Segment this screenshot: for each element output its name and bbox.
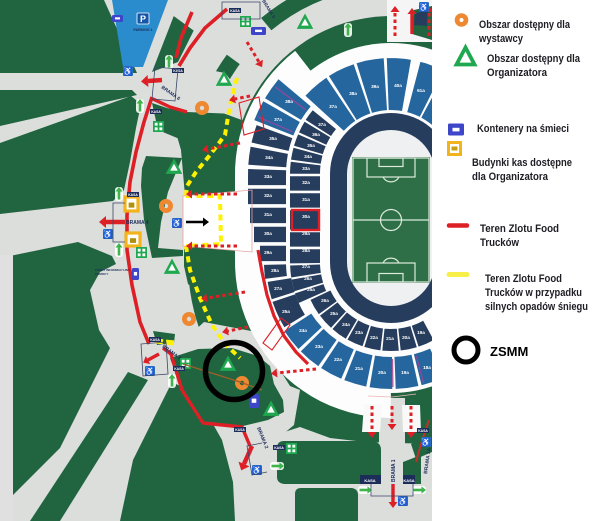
svg-text:KASA: KASA bbox=[274, 446, 284, 450]
svg-text:31a: 31a bbox=[302, 197, 310, 202]
svg-text:22a: 22a bbox=[334, 357, 342, 362]
svg-text:39a: 39a bbox=[371, 84, 379, 89]
svg-text:24a: 24a bbox=[342, 322, 350, 327]
svg-text:18a: 18a bbox=[423, 365, 431, 370]
svg-text:PARKING 1: PARKING 1 bbox=[133, 28, 152, 32]
svg-text:KASA: KASA bbox=[403, 478, 414, 483]
svg-text:♿: ♿ bbox=[398, 496, 408, 506]
svg-text:26a: 26a bbox=[304, 276, 312, 281]
svg-text:35a: 35a bbox=[269, 136, 277, 141]
svg-text:♿: ♿ bbox=[103, 229, 113, 239]
svg-text:28a: 28a bbox=[302, 248, 310, 253]
svg-text:♿: ♿ bbox=[421, 437, 431, 447]
svg-text:Teren Zlotu Food: Teren Zlotu Food bbox=[480, 223, 559, 235]
svg-text:32a: 32a bbox=[264, 193, 272, 198]
svg-text:20a: 20a bbox=[402, 335, 410, 340]
svg-text:19a: 19a bbox=[417, 330, 425, 335]
svg-text:27a: 27a bbox=[274, 286, 282, 291]
svg-text:25a: 25a bbox=[282, 309, 290, 314]
svg-text:22a: 22a bbox=[370, 335, 378, 340]
svg-text:37a: 37a bbox=[329, 104, 337, 109]
svg-text:ZSMM: ZSMM bbox=[490, 344, 528, 359]
svg-text:KASA: KASA bbox=[230, 9, 240, 13]
svg-text:KASA: KASA bbox=[364, 478, 375, 483]
svg-text:24a: 24a bbox=[299, 328, 307, 333]
svg-text:Teren Zlotu Food: Teren Zlotu Food bbox=[485, 273, 562, 285]
svg-text:dla Organizatora: dla Organizatora bbox=[472, 171, 549, 183]
svg-text:21a: 21a bbox=[386, 336, 394, 341]
svg-text:KASA: KASA bbox=[174, 367, 184, 371]
svg-text:Organizatora: Organizatora bbox=[487, 67, 548, 79]
svg-text:34a: 34a bbox=[265, 155, 273, 160]
svg-text:27a: 27a bbox=[302, 264, 310, 269]
svg-text:33a: 33a bbox=[302, 166, 310, 171]
svg-text:KASA: KASA bbox=[418, 429, 428, 433]
svg-text:37a: 37a bbox=[318, 122, 326, 127]
svg-text:61a: 61a bbox=[417, 88, 425, 93]
svg-text:wystawcy: wystawcy bbox=[478, 33, 524, 45]
svg-text:33a: 33a bbox=[264, 174, 272, 179]
svg-text:♿: ♿ bbox=[419, 2, 429, 12]
svg-text:26a: 26a bbox=[321, 298, 329, 303]
svg-text:Kontenery na śmieci: Kontenery na śmieci bbox=[477, 123, 569, 135]
svg-text:30a: 30a bbox=[302, 214, 310, 219]
svg-text:23a: 23a bbox=[355, 330, 363, 335]
svg-text:36a: 36a bbox=[312, 132, 320, 137]
svg-text:♿: ♿ bbox=[172, 218, 182, 228]
svg-text:P: P bbox=[140, 14, 146, 24]
svg-text:38a: 38a bbox=[349, 91, 357, 96]
svg-text:28a: 28a bbox=[271, 268, 279, 273]
svg-text:Trucków w przypadku: Trucków w przypadku bbox=[485, 287, 582, 299]
svg-text:POMOCY: POMOCY bbox=[95, 272, 108, 276]
svg-text:25a: 25a bbox=[330, 311, 338, 316]
svg-text:34a: 34a bbox=[304, 154, 312, 159]
svg-text:KASA: KASA bbox=[151, 110, 161, 114]
svg-text:31a: 31a bbox=[264, 212, 272, 217]
svg-text:19a: 19a bbox=[401, 370, 409, 375]
svg-text:21a: 21a bbox=[355, 366, 363, 371]
svg-text:37a: 37a bbox=[274, 117, 282, 122]
svg-text:Budynki kas dostępne: Budynki kas dostępne bbox=[472, 157, 572, 169]
svg-text:silnych opadów śniegu: silnych opadów śniegu bbox=[485, 301, 588, 313]
svg-text:Obszar dostępny dla: Obszar dostępny dla bbox=[479, 19, 571, 31]
svg-text:KASA: KASA bbox=[235, 428, 245, 432]
svg-text:Obszar dostępny dla: Obszar dostępny dla bbox=[487, 53, 581, 65]
svg-text:♿: ♿ bbox=[145, 366, 155, 376]
svg-text:BRAMA 4: BRAMA 4 bbox=[126, 220, 149, 226]
svg-text:40a: 40a bbox=[394, 83, 402, 88]
svg-text:BRAMA 1: BRAMA 1 bbox=[391, 459, 397, 482]
svg-text:20a: 20a bbox=[378, 370, 386, 375]
svg-text:♿: ♿ bbox=[123, 66, 133, 76]
svg-text:30a: 30a bbox=[264, 231, 272, 236]
svg-text:38a: 38a bbox=[285, 99, 293, 104]
svg-text:35a: 35a bbox=[307, 143, 315, 148]
svg-text:32a: 32a bbox=[302, 180, 310, 185]
svg-text:23a: 23a bbox=[315, 344, 323, 349]
svg-text:Trucków: Trucków bbox=[480, 237, 519, 249]
svg-text:KASA: KASA bbox=[128, 193, 138, 197]
svg-text:29a: 29a bbox=[264, 250, 272, 255]
svg-text:KASA: KASA bbox=[150, 338, 160, 342]
svg-text:25a: 25a bbox=[307, 287, 315, 292]
svg-text:29a: 29a bbox=[302, 231, 310, 236]
